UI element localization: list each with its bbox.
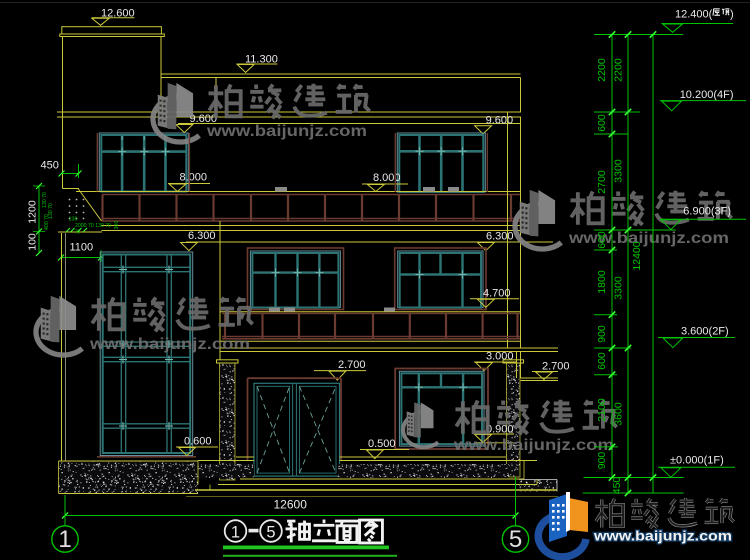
svg-text:450: 450	[611, 477, 623, 495]
svg-text:www.baijunjz.com: www.baijunjz.com	[593, 529, 732, 544]
svg-text:0.600: 0.600	[184, 436, 212, 448]
svg-text:300: 300	[114, 221, 120, 230]
svg-text:2200: 2200	[596, 58, 608, 82]
svg-text:9.600: 9.600	[486, 115, 514, 127]
svg-text:1800: 1800	[596, 270, 608, 294]
svg-text:1200: 1200	[27, 200, 39, 224]
svg-text:3300: 3300	[613, 159, 625, 183]
svg-text:2000 70 130 70: 2000 70 130 70	[75, 223, 111, 229]
svg-text:8.000: 8.000	[373, 172, 401, 184]
svg-text:www.baijunjz.com: www.baijunjz.com	[568, 230, 729, 247]
svg-text:450: 450	[41, 160, 59, 172]
svg-text:2.700: 2.700	[542, 361, 570, 373]
svg-text:3.000: 3.000	[486, 351, 514, 363]
svg-text:12400: 12400	[631, 241, 643, 270]
svg-text:100: 100	[27, 233, 39, 251]
svg-text:600: 600	[596, 114, 608, 132]
svg-text:2200: 2200	[613, 58, 625, 82]
svg-text:2700: 2700	[596, 170, 608, 194]
svg-text:5: 5	[509, 526, 522, 553]
svg-text:4.700: 4.700	[483, 288, 511, 300]
svg-text:2100: 2100	[596, 398, 608, 422]
svg-text:2.700: 2.700	[338, 359, 366, 371]
svg-text:1: 1	[231, 524, 240, 542]
svg-text:12.400(: 12.400(	[675, 9, 713, 21]
svg-text:www.baijunjz.com: www.baijunjz.com	[453, 437, 614, 454]
svg-text:400 70: 400 70	[44, 214, 50, 230]
svg-text:1: 1	[58, 526, 71, 553]
svg-text:3300: 3300	[613, 276, 625, 300]
svg-text:12600: 12600	[274, 498, 308, 512]
svg-text:10.200(4F): 10.200(4F)	[680, 89, 734, 101]
svg-text:3.600(2F): 3.600(2F)	[681, 326, 729, 338]
svg-text:600: 600	[596, 231, 608, 249]
svg-text:www.baijunjz.com: www.baijunjz.com	[206, 123, 367, 140]
svg-text:8.000: 8.000	[180, 172, 208, 184]
svg-text:): )	[730, 9, 734, 21]
svg-text:0.500: 0.500	[368, 438, 396, 450]
svg-text:±0.000(1F): ±0.000(1F)	[670, 455, 724, 467]
svg-text:1100: 1100	[70, 242, 94, 254]
svg-text:www.baijunjz.com: www.baijunjz.com	[89, 336, 250, 353]
svg-text:900: 900	[596, 325, 608, 343]
svg-text:5: 5	[266, 524, 275, 542]
svg-text:900: 900	[596, 452, 608, 470]
svg-text:3600: 3600	[613, 402, 625, 426]
svg-text:130: 130	[69, 217, 78, 223]
svg-text:6.300: 6.300	[188, 230, 216, 242]
svg-text:6.900(3F): 6.900(3F)	[683, 206, 731, 218]
svg-text:6.300: 6.300	[486, 231, 514, 243]
svg-text:600: 600	[596, 352, 608, 370]
